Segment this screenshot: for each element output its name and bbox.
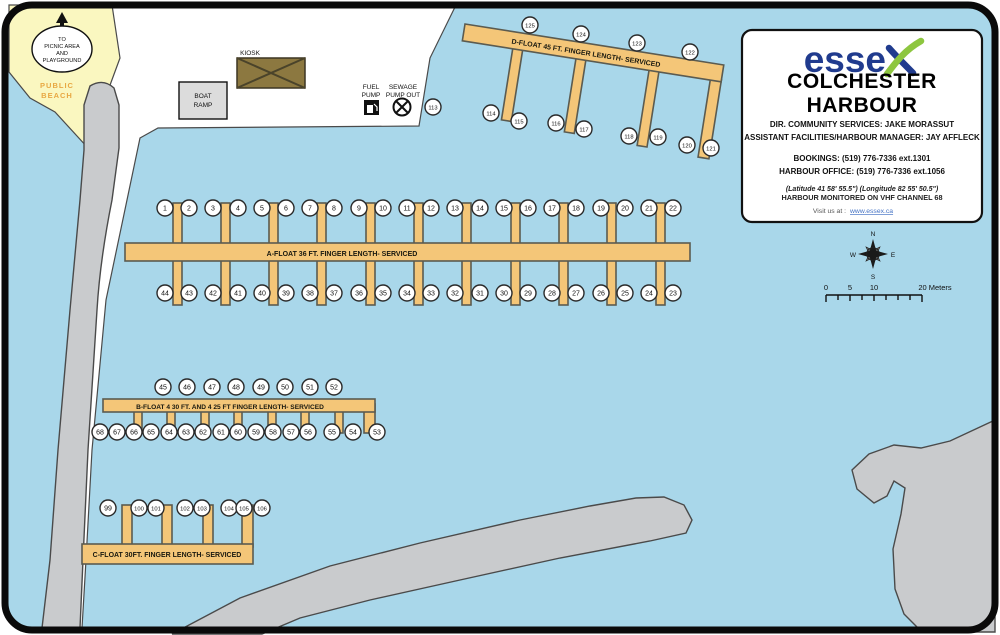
picnic-sign-line3: AND [56, 51, 68, 57]
slip-number-68: 68 [96, 430, 104, 437]
slip-number-15: 15 [500, 206, 508, 213]
picnic-sign-line1: TO [58, 37, 66, 43]
visit-label: Visit us at : [813, 208, 846, 215]
compass-w-label: W [850, 252, 857, 259]
slip-number-28: 28 [548, 291, 556, 298]
slip-number-48: 48 [232, 385, 240, 392]
slip-number-2: 2 [187, 206, 191, 213]
slip-number-20: 20 [621, 206, 629, 213]
picnic-sign-line4: PLAYGROUND [43, 58, 82, 64]
slip-number-58: 58 [269, 430, 277, 437]
slip-number-119: 119 [653, 136, 662, 142]
boat-ramp [179, 82, 227, 119]
slip-number-19: 19 [597, 206, 605, 213]
float-b-label: B-FLOAT 4 30 FT. AND 4 25 FT FINGER LENG… [136, 404, 324, 411]
slip-number-63: 63 [182, 430, 190, 437]
slip-number-22: 22 [669, 206, 677, 213]
slip-number-13: 13 [451, 206, 459, 213]
compass-n-label: N [871, 231, 876, 238]
slip-number-51: 51 [306, 385, 314, 392]
slip-number-45: 45 [159, 385, 167, 392]
slip-number-122: 122 [685, 51, 695, 57]
slip-number-101: 101 [151, 507, 161, 513]
slip-number-100: 100 [134, 507, 144, 513]
slip-number-105: 105 [239, 507, 249, 513]
slip-number-1: 1 [163, 206, 167, 213]
harbour-title-line1: COLCHESTER [787, 70, 937, 93]
boat-ramp-label-line2: RAMP [194, 102, 213, 109]
slip-number-121: 121 [706, 147, 716, 153]
slip-number-67: 67 [113, 430, 121, 437]
slip-number-11: 11 [403, 206, 410, 213]
slip-number-47: 47 [208, 385, 216, 392]
bookings-line: BOOKINGS: (519) 776-7336 ext.1301 [794, 154, 932, 163]
slip-number-9: 9 [357, 206, 361, 213]
slip-number-40: 40 [258, 291, 266, 298]
slip-number-38: 38 [306, 291, 314, 298]
info-box: esse COLCHESTER HARBOUR DIR. COMMUNITY S… [742, 30, 982, 222]
boat-ramp-label-line1: BOAT [194, 93, 211, 100]
slip-number-60: 60 [234, 430, 242, 437]
slip-number-102: 102 [180, 507, 190, 513]
slip-number-65: 65 [147, 430, 155, 437]
fuel-pump-label-line1: FUEL [363, 84, 380, 91]
slip-number-4: 4 [236, 206, 240, 213]
slip-number-124: 124 [576, 33, 586, 39]
slip-number-99: 99 [104, 506, 112, 513]
fuel-pump-icon [364, 100, 379, 115]
slip-number-125: 125 [525, 24, 535, 30]
slip-number-55: 55 [328, 430, 336, 437]
float-c-label: C-FLOAT 30FT. FINGER LENGTH- SERVICED [93, 552, 242, 559]
slip-number-103: 103 [197, 507, 207, 513]
kiosk [237, 58, 305, 88]
scale-label-5: 5 [848, 283, 852, 292]
slip-number-21: 21 [645, 206, 653, 213]
slip-number-66: 66 [130, 430, 138, 437]
slip-number-61: 61 [217, 430, 225, 437]
sewage-pumpout-icon [394, 99, 411, 116]
visit-link[interactable]: www.essex.ca [849, 208, 893, 215]
slip-number-62: 62 [199, 430, 207, 437]
scale-label-0: 0 [824, 283, 828, 292]
slip-number-29: 29 [524, 291, 532, 298]
slip-number-25: 25 [621, 291, 629, 298]
map-canvas: TO PICNIC AREA AND PLAYGROUND PUBLIC BEA… [0, 0, 1000, 635]
slip-number-17: 17 [548, 206, 556, 213]
slip-number-30: 30 [500, 291, 508, 298]
compass-e-label: E [891, 252, 896, 259]
slip-number-12: 12 [427, 206, 435, 213]
slip-number-44: 44 [161, 291, 169, 298]
slip-number-43: 43 [185, 291, 193, 298]
fuel-pump-label-line2: PUMP [362, 92, 381, 99]
slip-number-8: 8 [332, 206, 336, 213]
slip-number-14: 14 [476, 206, 484, 213]
slip-number-50: 50 [281, 385, 289, 392]
float-a-label: A-FLOAT 36 FT. FINGER LENGTH- SERVICED [267, 251, 418, 258]
slip-number-27: 27 [572, 291, 580, 298]
slip-number-41: 41 [234, 291, 242, 298]
public-beach-label-line1: PUBLIC [40, 81, 74, 90]
slip-number-49: 49 [257, 385, 265, 392]
slip-number-16: 16 [524, 206, 532, 213]
slip-number-36: 36 [355, 291, 363, 298]
sewage-pumpout-label-line1: SEWAGE [389, 84, 418, 91]
slip-number-33: 33 [427, 291, 435, 298]
slip-number-35: 35 [379, 291, 387, 298]
director-line: DIR. COMMUNITY SERVICES: JAKE MORASSUT [770, 120, 954, 129]
harbour-title-line2: HARBOUR [807, 94, 918, 117]
slip-number-7: 7 [308, 206, 312, 213]
slip-number-54: 54 [349, 430, 357, 437]
slip-number-123: 123 [632, 42, 642, 48]
slip-number-106: 106 [257, 507, 267, 513]
slip-number-64: 64 [165, 430, 173, 437]
slip-number-114: 114 [486, 112, 496, 118]
slip-number-18: 18 [572, 206, 580, 213]
slip-number-34: 34 [403, 291, 411, 298]
slip-number-115: 115 [514, 120, 523, 126]
slip-number-118: 118 [624, 135, 633, 141]
slip-number-52: 52 [330, 385, 338, 392]
slip-number-120: 120 [682, 144, 692, 150]
slip-number-5: 5 [260, 206, 264, 213]
slip-number-116: 116 [551, 122, 560, 128]
slip-number-117: 117 [579, 128, 588, 134]
slip-number-26: 26 [597, 291, 605, 298]
kiosk-label: KIOSK [240, 50, 261, 57]
slip-number-104: 104 [224, 507, 234, 513]
slip-number-57: 57 [287, 430, 295, 437]
vhf-line: HARBOUR MONITORED ON VHF CHANNEL 68 [781, 193, 942, 202]
slip-number-32: 32 [451, 291, 459, 298]
compass-s-label: S [871, 274, 876, 281]
slip-number-31: 31 [476, 291, 484, 298]
slip-number-53: 53 [373, 430, 381, 437]
scale-label-20: 20 Meters [918, 283, 952, 292]
slip-number-42: 42 [209, 291, 217, 298]
picnic-sign-line2: PICNIC AREA [44, 44, 80, 50]
slip-number-113: 113 [428, 106, 437, 112]
slip-number-23: 23 [669, 291, 677, 298]
slip-number-56: 56 [304, 430, 312, 437]
coordinates-line: (Latitude 41 58' 55.5") (Longitude 82 55… [786, 186, 939, 193]
slip-number-6: 6 [284, 206, 288, 213]
assistant-line: ASSISTANT FACILITIES/HARBOUR MANAGER: JA… [744, 133, 980, 142]
slip-number-10: 10 [379, 206, 387, 213]
public-beach-label-line2: BEACH [41, 91, 73, 100]
scale-label-10: 10 [870, 283, 878, 292]
slip-number-59: 59 [252, 430, 260, 437]
slip-number-39: 39 [282, 291, 290, 298]
slip-number-37: 37 [330, 291, 338, 298]
slip-number-46: 46 [183, 385, 191, 392]
slip-number-24: 24 [645, 291, 653, 298]
slip-number-3: 3 [211, 206, 215, 213]
harbour-map: TO PICNIC AREA AND PLAYGROUND PUBLIC BEA… [0, 0, 1000, 635]
office-line: HARBOUR OFFICE: (519) 776-7336 ext.1056 [779, 167, 945, 176]
